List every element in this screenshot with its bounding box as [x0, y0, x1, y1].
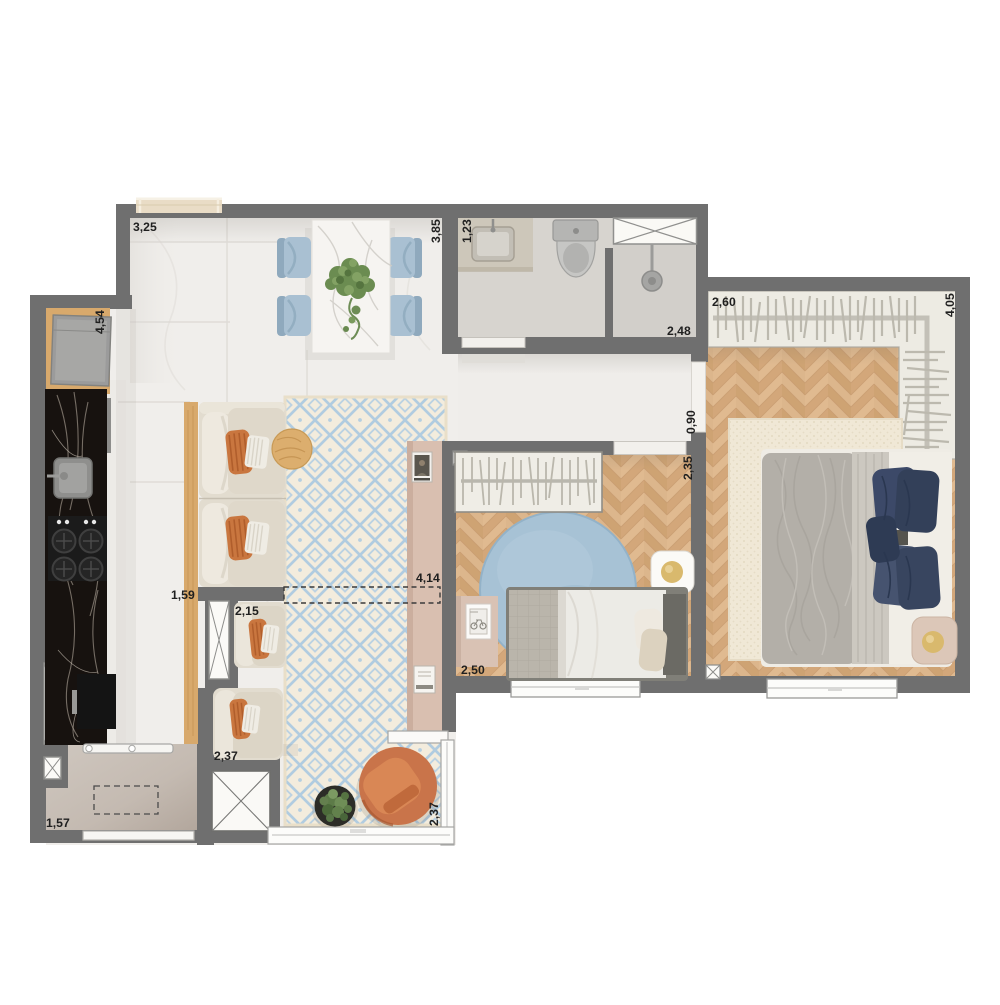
svg-text:3,25: 3,25: [133, 220, 157, 234]
svg-text:2,37: 2,37: [427, 802, 441, 826]
svg-text:2,37: 2,37: [214, 749, 238, 763]
svg-text:4,14: 4,14: [416, 571, 440, 585]
svg-text:1,57: 1,57: [46, 816, 70, 830]
svg-text:4,54: 4,54: [93, 310, 107, 334]
svg-text:2,15: 2,15: [235, 604, 259, 618]
svg-text:4,05: 4,05: [943, 293, 957, 317]
svg-text:3,85: 3,85: [429, 219, 443, 243]
svg-text:1,59: 1,59: [171, 588, 195, 602]
svg-text:2,50: 2,50: [461, 663, 485, 677]
svg-text:2,60: 2,60: [712, 295, 736, 309]
svg-text:1,23: 1,23: [460, 219, 474, 243]
svg-text:2,48: 2,48: [667, 324, 691, 338]
svg-text:0,90: 0,90: [684, 410, 698, 434]
svg-text:2,35: 2,35: [681, 456, 695, 480]
